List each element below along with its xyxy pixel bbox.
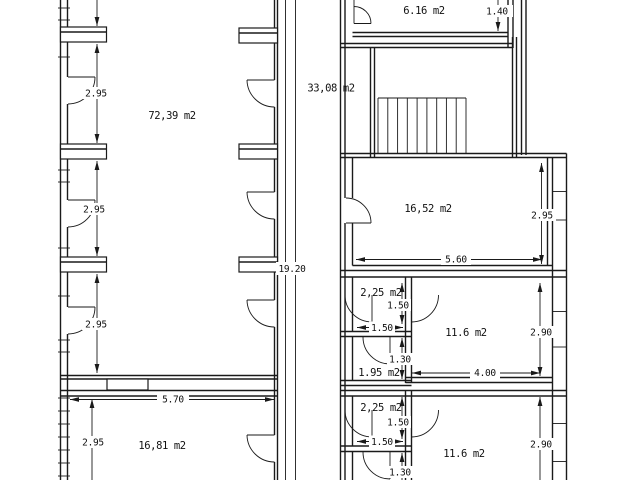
door-wc-b	[363, 452, 390, 479]
dim-label: 1.50	[371, 437, 393, 448]
door-hall-right-1	[247, 80, 275, 107]
dim-2-95-bay1: 2.95	[82, 44, 110, 143]
dim-label: 2.90	[530, 328, 552, 339]
left-building-walls	[58, 0, 278, 480]
dim-label: 2.95	[85, 89, 107, 100]
dim-19-20: 19.20	[276, 262, 310, 275]
room-label-6-16: 6.16 m2	[403, 5, 445, 17]
dim-label: 5.60	[445, 255, 467, 266]
hall-bottom-walls	[61, 376, 278, 397]
dim-label: 5.70	[162, 395, 184, 406]
room-label-16-52: 16,52 m2	[404, 203, 451, 215]
dim-2-90-a: 2.90	[527, 283, 555, 376]
site-boundary-lines	[286, 0, 296, 480]
room-label-1-95-a: 1.95 m2	[358, 367, 400, 379]
door-wc-a	[363, 337, 390, 364]
dim-label: 1.30	[389, 355, 411, 366]
room-labels: 72,39 m2 33,08 m2 6.16 m2 16,52 m2 2,25 …	[138, 5, 486, 460]
dim-2-90-b: 2.90	[527, 397, 555, 480]
dim-label: 1.50	[387, 418, 409, 429]
room-label-2-25-b: 2,25 m2	[360, 402, 402, 414]
room-label-2-25-a: 2,25 m2	[360, 287, 402, 299]
dim-label: 2.95	[83, 205, 105, 216]
room-label-11-6-a: 11.6 m2	[445, 327, 487, 339]
dim-1-30-b: 1.30	[387, 453, 413, 480]
dim-5-70: 5.70	[70, 393, 274, 406]
doorway-threshold	[107, 379, 148, 390]
dim-2-95-bay2: 2.95	[80, 161, 108, 256]
room-label-11-6-b: 11.6 m2	[443, 448, 485, 460]
door-hall-right-3	[247, 300, 275, 327]
dim-label: 19.20	[278, 264, 306, 275]
door-hall-right-2	[247, 192, 275, 219]
room-label-72-39: 72,39 m2	[148, 110, 195, 122]
room-label-33-08: 33,08 m2	[307, 83, 354, 95]
door-annex-6-16	[354, 0, 371, 24]
right-outer-wall	[553, 154, 567, 480]
dim-label: 1.40	[486, 7, 508, 18]
door-room-16-81	[247, 435, 275, 462]
dim-label: 2.90	[530, 440, 552, 451]
room-label-16-81: 16,81 m2	[138, 440, 185, 452]
dim-label: 1.50	[387, 301, 409, 312]
door-lobby-a	[345, 295, 372, 322]
door-lobby-b	[345, 410, 372, 437]
dim-label: 2.95	[82, 438, 104, 449]
dimensions: 2.95 2.95 2.95 2.95 5.70 19.20	[70, 0, 556, 480]
dim-5-60: 5.60	[356, 253, 542, 266]
floor-plan-sheet: 2.95 2.95 2.95 2.95 5.70 19.20	[0, 0, 640, 480]
dim-label: 4.00	[474, 368, 496, 379]
door-room-16-52	[346, 198, 371, 223]
dim-label: 1.50	[371, 323, 393, 334]
floor-plan-drawing: 2.95 2.95 2.95 2.95 5.70 19.20	[0, 0, 640, 480]
stair-hall-walls	[371, 0, 527, 157]
door-room-11-6-a	[412, 295, 439, 322]
dim-label: 2.95	[85, 320, 107, 331]
hall-right-wall	[239, 0, 278, 480]
dim-2-95-bay3: 2.95	[82, 274, 110, 373]
dim-2-95-1681: 2.95	[78, 399, 106, 480]
dim-label: 1.30	[389, 468, 411, 479]
door-room-11-6-b	[412, 410, 439, 437]
dim-label: 2.95	[531, 211, 553, 222]
staircase	[378, 98, 466, 154]
